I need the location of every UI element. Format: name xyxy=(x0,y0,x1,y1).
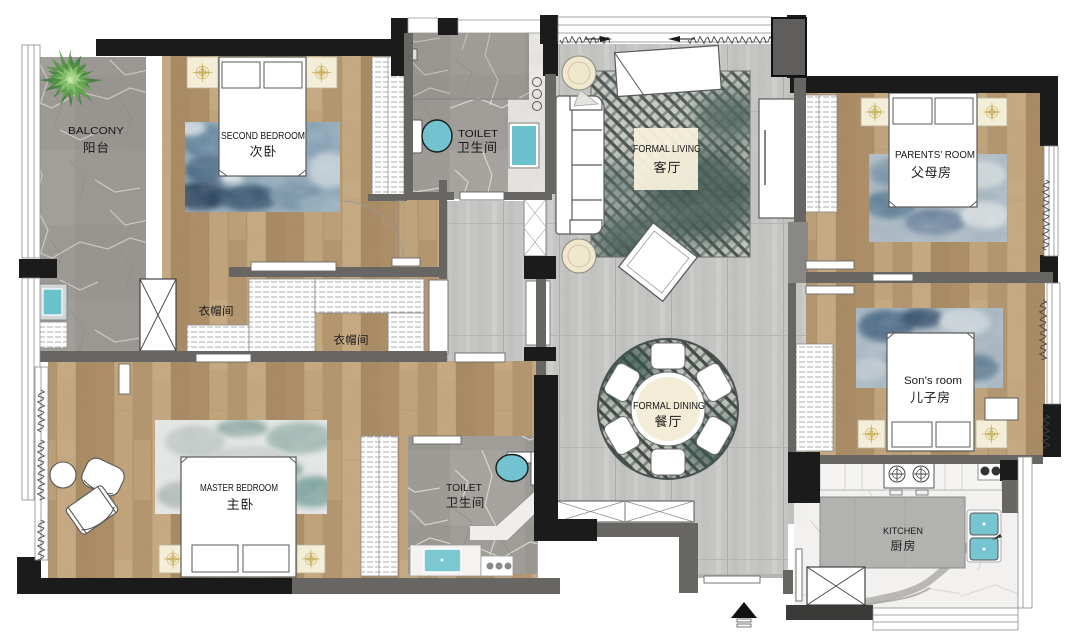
svg-text:KITCHEN: KITCHEN xyxy=(883,526,923,537)
svg-text:SECOND BEDROOM: SECOND BEDROOM xyxy=(221,130,305,142)
svg-text:FORMAL DINING: FORMAL DINING xyxy=(633,400,705,412)
svg-text:Son’s room: Son’s room xyxy=(904,375,962,387)
svg-text:MASTER BEDROOM: MASTER BEDROOM xyxy=(200,482,278,494)
svg-text:FORMAL LIVING: FORMAL LIVING xyxy=(633,143,701,155)
svg-text:TOILET: TOILET xyxy=(446,482,483,494)
svg-text:BALCONY: BALCONY xyxy=(68,126,124,137)
svg-text:PARENTS’ ROOM: PARENTS’ ROOM xyxy=(895,149,975,161)
svg-text:TOILET: TOILET xyxy=(458,128,499,140)
